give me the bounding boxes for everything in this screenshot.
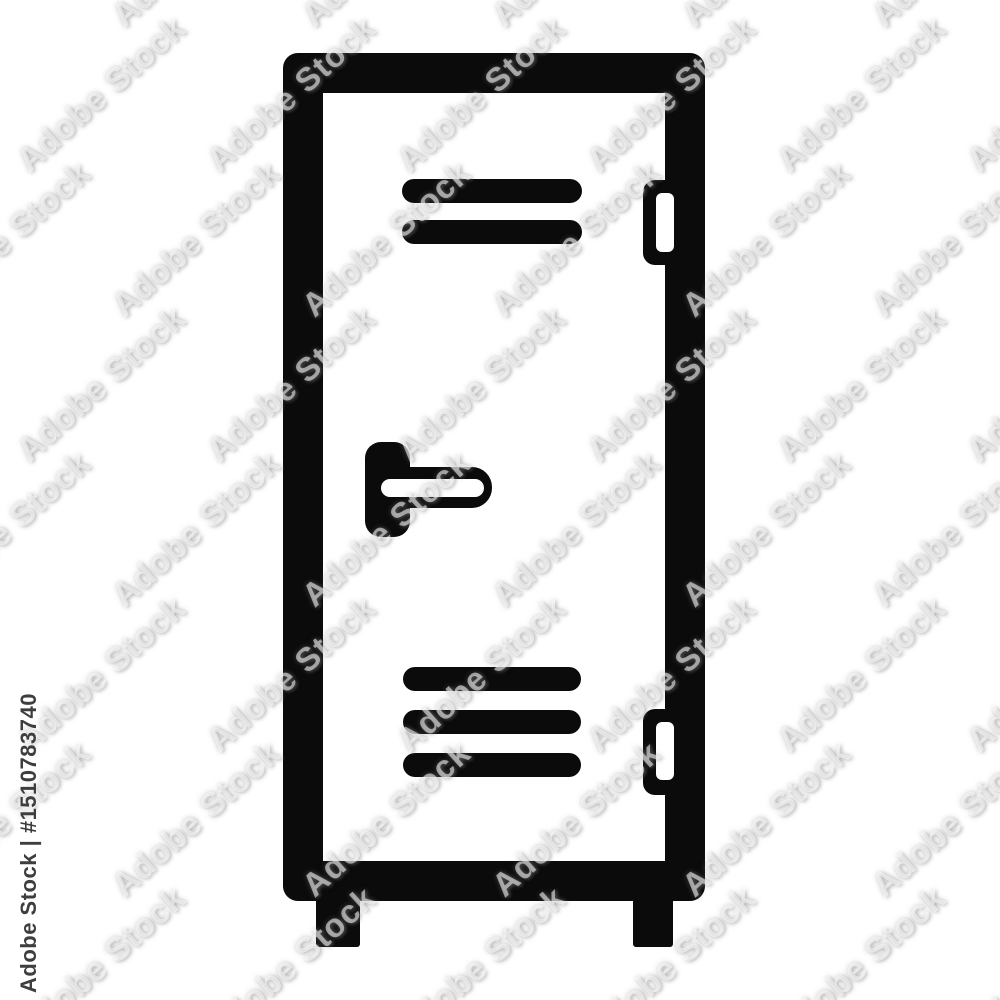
- door-hinge-top-slot: [656, 193, 674, 252]
- door-handle-slot: [381, 479, 484, 497]
- vent-slat-top-2: [402, 220, 582, 244]
- vent-slat-bottom-3: [403, 753, 581, 777]
- locker-icon: [0, 0, 1000, 1000]
- stock-id-label: Adobe Stock | #1510783740: [16, 693, 42, 993]
- locker-foot-right: [633, 901, 673, 947]
- stock-image-preview: Adobe StockAdobe StockAdobe StockAdobe S…: [0, 0, 1000, 1000]
- door-hinge-bottom-slot: [656, 722, 674, 780]
- locker-foot-left: [316, 901, 360, 947]
- vent-slat-top-1: [402, 179, 582, 203]
- vent-slat-bottom-1: [403, 667, 581, 691]
- vent-slat-bottom-2: [403, 710, 581, 734]
